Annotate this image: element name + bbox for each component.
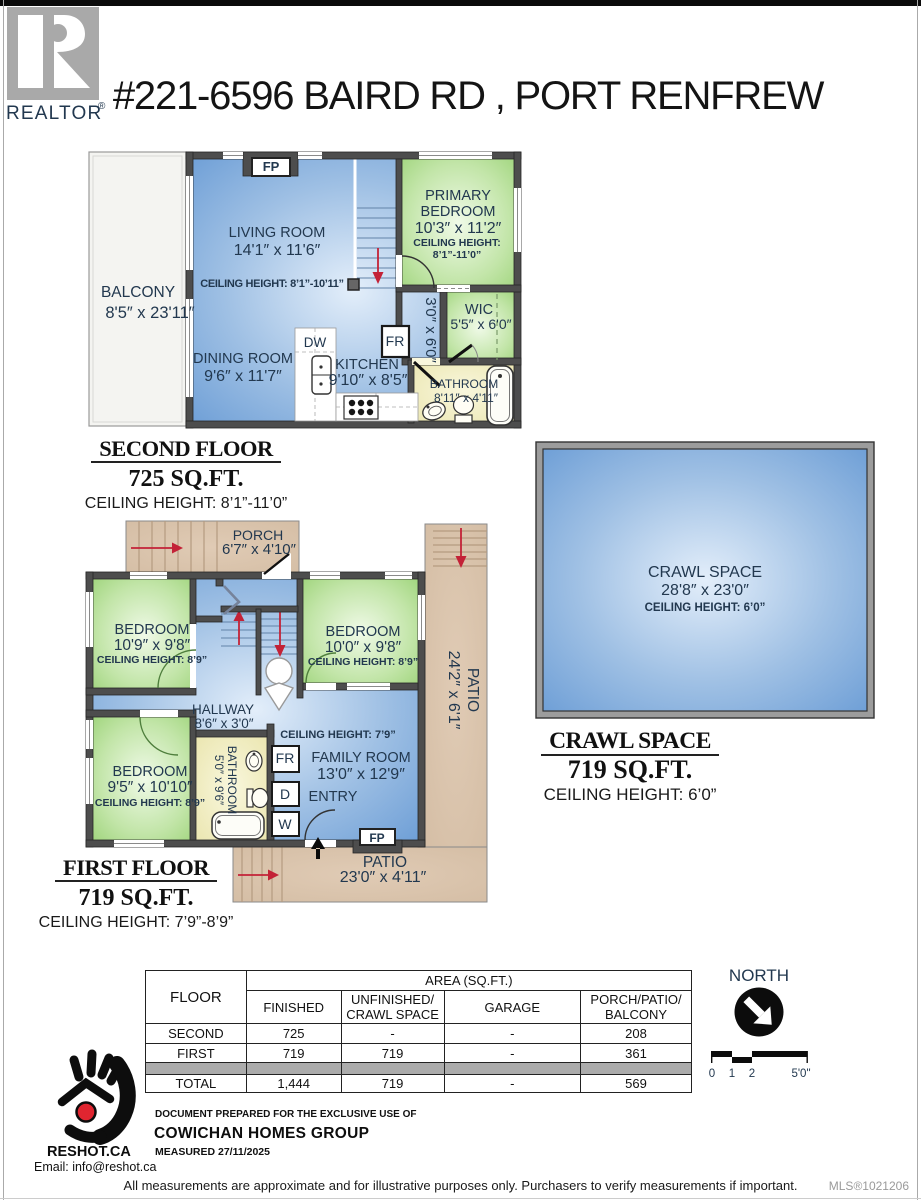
svg-text:NORTH: NORTH [729,966,789,985]
svg-text:CRAWL SPACE: CRAWL SPACE [648,564,762,581]
svg-text:CEILING HEIGHT: 6’0”: CEILING HEIGHT: 6’0” [645,602,766,614]
svg-text:28'8″ x 23'0″: 28'8″ x 23'0″ [661,582,749,599]
svg-text:5'0": 5'0" [791,1068,810,1080]
svg-text:1: 1 [729,1068,735,1080]
svg-text:2: 2 [749,1068,755,1080]
svg-text:0: 0 [709,1068,715,1080]
